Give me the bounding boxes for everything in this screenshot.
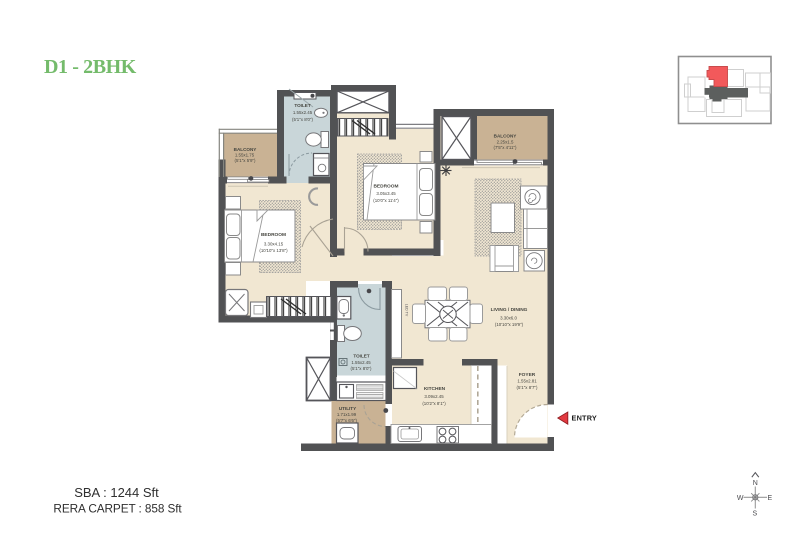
svg-text:BEDROOM: BEDROOM <box>261 232 286 238</box>
svg-text:(7'5"x 4'11"): (7'5"x 4'11") <box>493 145 517 150</box>
svg-text:ENTRY: ENTRY <box>572 414 597 423</box>
svg-text:W: W <box>737 495 744 502</box>
svg-text:KITCHEN: KITCHEN <box>424 386 446 392</box>
svg-text:3.05x3.45: 3.05x3.45 <box>376 191 396 196</box>
svg-text:E: E <box>767 495 772 502</box>
svg-text:(10'10"x 13'8"): (10'10"x 13'8") <box>259 248 288 253</box>
svg-text:(5'1"x 8'7"): (5'1"x 8'7") <box>517 385 538 390</box>
svg-text:SBA : 1244 Sft: SBA : 1244 Sft <box>74 485 159 500</box>
svg-text:1.55x2.45: 1.55x2.45 <box>293 110 313 115</box>
svg-text:N: N <box>753 480 758 487</box>
svg-text:BEDROOM: BEDROOM <box>373 184 398 190</box>
svg-text:TOILET: TOILET <box>294 103 310 108</box>
svg-text:BALCONY: BALCONY <box>234 147 257 152</box>
svg-text:(5'1"x 5'9"): (5'1"x 5'9") <box>235 158 256 163</box>
svg-text:(10'10"x 19'9"): (10'10"x 19'9") <box>495 322 524 327</box>
svg-text:1.55x2.81: 1.55x2.81 <box>517 378 537 383</box>
svg-text:LIVING / DINING: LIVING / DINING <box>491 307 528 313</box>
svg-text:S: S <box>752 510 757 517</box>
svg-text:LED TV: LED TV <box>405 304 409 317</box>
svg-text:(5'1"x 8'0"): (5'1"x 8'0") <box>292 117 313 122</box>
svg-text:3.09x2.45: 3.09x2.45 <box>424 394 444 399</box>
svg-text:1.55x2.45: 1.55x2.45 <box>351 360 371 365</box>
svg-text:D1 - 2BHK: D1 - 2BHK <box>44 56 137 78</box>
svg-text:TOILET: TOILET <box>353 353 369 358</box>
svg-text:3.30x6.0: 3.30x6.0 <box>500 316 517 321</box>
svg-text:FOYER: FOYER <box>519 372 536 378</box>
svg-text:(5'1"x 8'0"): (5'1"x 8'0") <box>351 366 372 371</box>
svg-text:1.71x1.99: 1.71x1.99 <box>337 412 357 417</box>
svg-text:(10'2"x 8'1"): (10'2"x 8'1") <box>422 401 446 406</box>
svg-text:(5'7"x 6'6"): (5'7"x 6'6") <box>336 418 357 423</box>
svg-text:BALCONY: BALCONY <box>494 134 517 139</box>
svg-text:(10'0"x 11'4"): (10'0"x 11'4") <box>373 198 399 203</box>
svg-text:3.30x4.15: 3.30x4.15 <box>264 241 284 246</box>
svg-text:RERA CARPET : 858 Sft: RERA CARPET : 858 Sft <box>53 501 182 515</box>
svg-text:1.55x1.75: 1.55x1.75 <box>235 153 255 158</box>
svg-text:UTILITY: UTILITY <box>339 406 356 411</box>
svg-text:2.25x1.5: 2.25x1.5 <box>497 139 514 144</box>
